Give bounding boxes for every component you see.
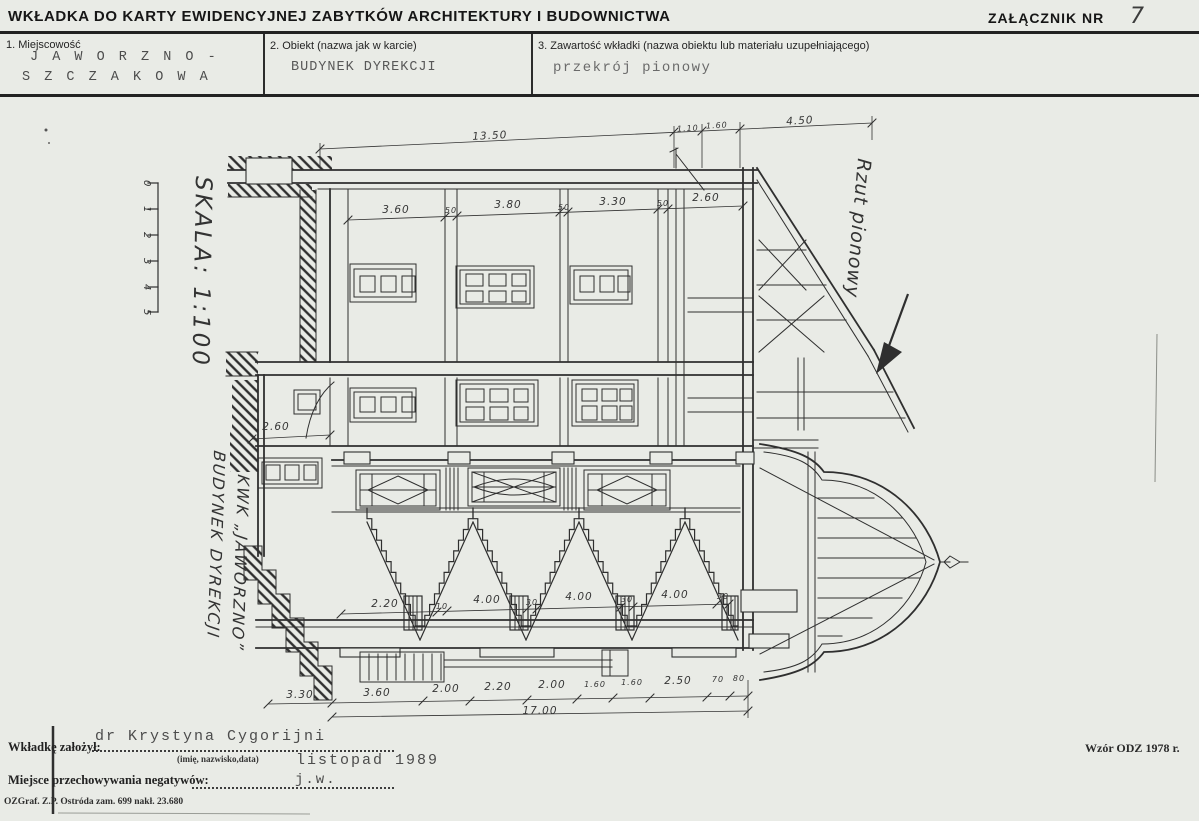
- document-title: WKŁADKA DO KARTY EWIDENCYJNEJ ZABYTKÓW A…: [8, 8, 671, 25]
- svg-text:1.60: 1.60: [621, 678, 643, 687]
- field-content-value: przekrój pionowy: [553, 60, 711, 76]
- print-info: OZGraf. Z.P. Ostróda zam. 699 nakł. 23.6…: [4, 797, 183, 807]
- stepped-foundation-wall: [244, 546, 332, 700]
- field-separator-1: [263, 34, 265, 94]
- header-rule-top: [0, 31, 1199, 34]
- scanned-record-card: 13.50 1.10 1.60 4.50 3.60 50 3.80 50 3.3…: [0, 0, 1199, 821]
- svg-text:3.80: 3.80: [494, 199, 521, 211]
- negatives-value: j.w.: [295, 772, 337, 788]
- header-rule-bottom: [0, 94, 1199, 97]
- svg-text:2.00: 2.00: [432, 683, 459, 695]
- svg-text:2.60: 2.60: [692, 192, 719, 204]
- svg-text:KWK „JAWORZNO”: KWK „JAWORZNO”: [228, 473, 253, 652]
- svg-text:0: 0: [141, 180, 152, 186]
- founder-hint: (imię, nazwisko,data): [177, 754, 259, 764]
- side-title: BUDYNEK DYREKCJI KWK „JAWORZNO”: [203, 449, 252, 652]
- svg-text:50: 50: [657, 199, 669, 208]
- svg-text:4.00: 4.00: [473, 594, 500, 606]
- form-version: Wzór ODZ 1978 r.: [1085, 741, 1180, 756]
- founder-label: Wkładkę założył:: [8, 740, 101, 755]
- decorative-panels: [356, 468, 670, 510]
- founder-value: dr Krystyna Cygorijni: [95, 728, 326, 745]
- scale-title: SKALA: 1:100: [187, 176, 216, 368]
- field-town-value-line2: S Z C Z A K O W A: [22, 70, 211, 85]
- direction-arrow-icon: [876, 294, 908, 374]
- svg-text:2: 2: [141, 232, 152, 238]
- negatives-dotted-line: [192, 787, 394, 789]
- field-object-value: BUDYNEK DYREKCJI: [291, 60, 437, 75]
- svg-text:3: 3: [141, 258, 152, 264]
- svg-text:10: 10: [436, 602, 448, 611]
- negatives-label: Miejsce przechowywania negatywów:: [8, 773, 209, 788]
- section-drawing: 13.50 1.10 1.60 4.50 3.60 50 3.80 50 3.3…: [0, 0, 1199, 821]
- svg-text:1.60: 1.60: [706, 120, 728, 130]
- svg-text:30: 30: [526, 598, 538, 607]
- svg-text:BUDYNEK DYREKCJI: BUDYNEK DYREKCJI: [203, 449, 228, 640]
- spire: [760, 452, 968, 672]
- svg-text:1: 1: [141, 206, 152, 212]
- structure-heavy: [228, 168, 940, 680]
- svg-text:4.00: 4.00: [565, 591, 592, 603]
- svg-text:17.00: 17.00: [522, 705, 557, 717]
- svg-text:30: 30: [717, 592, 729, 601]
- svg-text:2.20: 2.20: [484, 681, 511, 693]
- veranda-frame: [753, 180, 908, 448]
- svg-text:1.10: 1.10: [677, 123, 699, 133]
- svg-text:2.00: 2.00: [538, 679, 565, 691]
- svg-text:2.50: 2.50: [664, 675, 691, 687]
- svg-text:4.00: 4.00: [661, 589, 688, 601]
- svg-text:5: 5: [141, 309, 152, 315]
- svg-text:3.60: 3.60: [363, 687, 390, 699]
- scale-bar: 0 1 2 3 4 5: [141, 180, 158, 315]
- svg-text:80: 80: [733, 674, 745, 683]
- annotation-rzut-pionowy: Rzut pionowy: [841, 158, 875, 300]
- svg-text:3.60: 3.60: [382, 204, 409, 216]
- svg-text:3.30: 3.30: [286, 689, 313, 701]
- founder-date: listopad 1989: [296, 752, 439, 769]
- svg-text:13.50: 13.50: [472, 129, 508, 143]
- field-object-label: 2. Obiekt (nazwa jak w karcie): [270, 40, 417, 52]
- svg-text:3.30: 3.30: [599, 196, 626, 208]
- field-content-label: 3. Zawartość wkładki (nazwa obiektu lub …: [538, 40, 869, 52]
- field-town-value-line1: J A W O R Z N O -: [30, 50, 219, 65]
- svg-text:4: 4: [141, 284, 152, 290]
- svg-text:1.60: 1.60: [584, 680, 606, 689]
- svg-text:50: 50: [445, 206, 457, 215]
- svg-text:50: 50: [558, 203, 570, 212]
- attachment-number: 7: [1130, 4, 1144, 29]
- svg-text:2.20: 2.20: [371, 598, 398, 610]
- svg-text:2.60: 2.60: [262, 421, 289, 433]
- field-separator-2: [531, 34, 533, 94]
- svg-text:4.50: 4.50: [786, 114, 814, 127]
- svg-text:30: 30: [621, 595, 633, 604]
- attachment-label: ZAŁĄCZNIK NR: [988, 10, 1104, 26]
- svg-text:70: 70: [712, 675, 724, 684]
